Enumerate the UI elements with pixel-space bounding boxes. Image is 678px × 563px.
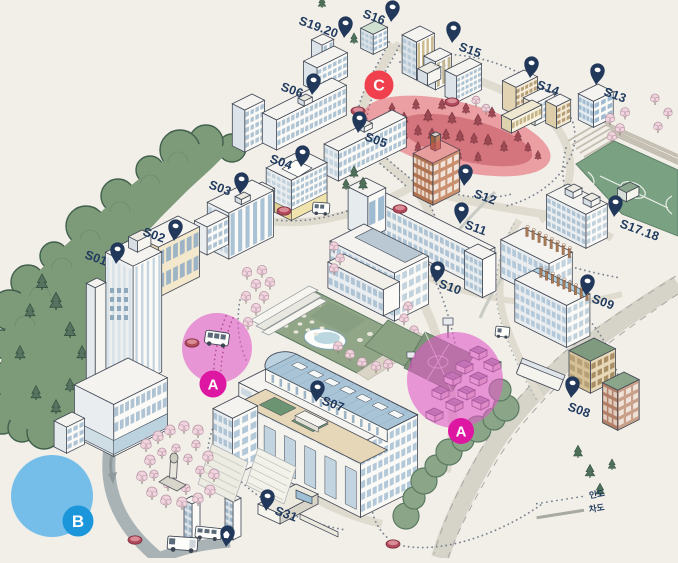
- svg-text:B: B: [72, 512, 84, 531]
- svg-text:A: A: [208, 377, 219, 394]
- svg-text:A: A: [456, 424, 467, 441]
- svg-text:C: C: [373, 78, 385, 95]
